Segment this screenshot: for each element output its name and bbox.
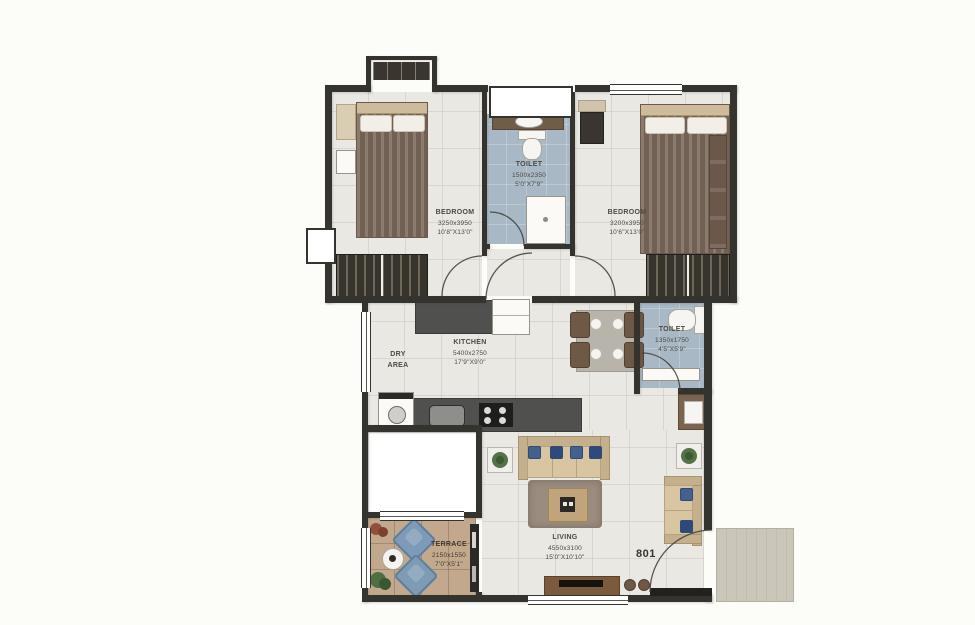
room-dims-mm: 3200x3950 xyxy=(580,219,674,229)
dining-chair xyxy=(570,342,590,368)
wall xyxy=(432,56,437,92)
burner xyxy=(484,417,491,424)
terrace-plant-green xyxy=(370,568,394,594)
bed-right-headboard xyxy=(641,105,729,116)
room-label-kitchen: KITCHEN 5400x2750 17'9"X9'0" xyxy=(425,338,515,368)
plant-icon xyxy=(685,452,693,460)
terrace-side-window xyxy=(361,528,371,588)
room-name: BEDROOM xyxy=(580,208,674,219)
table-top-item xyxy=(389,555,396,562)
room-name: BEDROOM xyxy=(408,208,502,219)
wall-niche xyxy=(306,228,336,264)
room-dims-ft: 10'8"X13'0" xyxy=(408,228,502,238)
washing-machine-panel xyxy=(379,393,413,399)
bed-left-pillow xyxy=(360,115,392,132)
planter xyxy=(487,447,513,473)
room-label-bedroom-left: BEDROOM 3250x3950 10'8"X13'0" xyxy=(408,208,502,238)
wall xyxy=(366,56,371,92)
bed-runner xyxy=(709,135,727,249)
room-label-toilet-right: TOILET 1350x1750 4'5"X5'9" xyxy=(634,325,710,355)
room-label-living: LIVING 4550x3100 15'0"X10'10" xyxy=(518,533,612,563)
sofa-arm xyxy=(664,534,702,544)
wardrobe-divider xyxy=(381,255,383,297)
wall xyxy=(362,425,482,432)
dry-area-window xyxy=(361,312,371,392)
bed-right-pillow xyxy=(687,117,727,134)
terrace-table xyxy=(382,548,404,570)
terrace-plant-red xyxy=(370,521,390,541)
plate xyxy=(590,348,602,360)
tv-console xyxy=(544,576,620,597)
floor-plan-canvas: BEDROOM 3250x3950 10'8"X13'0" TOILET 150… xyxy=(0,0,975,625)
kitchen-counter-top xyxy=(415,300,493,334)
kitchen-sink xyxy=(429,405,465,427)
plate xyxy=(590,318,602,330)
room-dims-ft: 10'6"X13'0" xyxy=(580,228,674,238)
room-dims-ft: 17'9"X9'0" xyxy=(425,358,515,368)
shower-tray xyxy=(526,196,566,244)
sofa-pillow xyxy=(589,446,602,459)
tray-item xyxy=(569,502,573,506)
unit-number: 801 xyxy=(636,548,656,560)
toilet-right-ledge xyxy=(642,368,700,381)
bedside-table xyxy=(336,150,356,174)
burner xyxy=(484,407,491,414)
passage-basin xyxy=(684,401,703,424)
bedroom-right-window xyxy=(610,84,682,95)
sofa-pillow xyxy=(680,488,693,501)
dining-chair xyxy=(570,312,590,338)
room-name: KITCHEN xyxy=(425,338,515,349)
wall xyxy=(325,296,486,303)
wardrobe-divider xyxy=(687,255,689,297)
tv-unit-bedroom xyxy=(580,112,604,144)
burner xyxy=(499,417,506,424)
sofa-3seat xyxy=(518,436,610,478)
wall xyxy=(532,296,737,303)
bed-right-pillow xyxy=(645,117,685,134)
bedside-cabinet xyxy=(336,104,356,140)
room-name: LIVING xyxy=(518,533,612,544)
entrance-door-leaf xyxy=(650,588,712,596)
plant-icon xyxy=(378,527,388,537)
entrance-landing xyxy=(716,528,794,602)
side-stool xyxy=(638,579,650,591)
wall xyxy=(482,244,490,249)
living-window xyxy=(528,595,628,605)
plant-icon xyxy=(496,456,504,464)
plate xyxy=(612,318,624,330)
room-name: TOILET xyxy=(634,325,710,336)
tv-icon xyxy=(559,580,603,587)
sofa-pillow xyxy=(528,446,541,459)
coffee-table xyxy=(548,488,588,522)
wall xyxy=(476,592,482,597)
room-name: DRY AREA xyxy=(382,350,414,371)
fridge xyxy=(492,299,530,335)
room-label-dry-area: DRY AREA xyxy=(382,350,414,371)
plate xyxy=(612,348,624,360)
shelf-right-bedroom xyxy=(578,100,606,112)
room-name: TERRACE xyxy=(420,540,478,551)
planter xyxy=(676,443,702,469)
room-dims-ft: 15'0"X10'10" xyxy=(518,553,612,563)
burner xyxy=(499,407,506,414)
wc-bowl xyxy=(522,138,542,160)
tray-item xyxy=(563,502,567,506)
washing-machine-drum xyxy=(388,406,406,424)
bed-left-headboard xyxy=(357,103,427,114)
bed-left-pillow xyxy=(393,115,425,132)
sofa-2seat xyxy=(664,476,702,544)
utility-void-room xyxy=(368,432,478,514)
terrace-top-window xyxy=(380,511,464,521)
coffee-table-tray xyxy=(560,497,575,512)
wardrobe-left xyxy=(336,254,428,298)
seat-divider xyxy=(665,510,692,511)
wall xyxy=(366,56,437,60)
wall xyxy=(730,85,737,303)
wall xyxy=(432,85,488,92)
room-dims-ft: 4'5"X5'9" xyxy=(634,345,710,355)
room-dims-mm: 5400x2750 xyxy=(425,349,515,359)
wall xyxy=(678,388,712,394)
room-label-bedroom-right: BEDROOM 3200x3950 10'6"X13'0" xyxy=(580,208,674,238)
fridge-door-line xyxy=(493,315,529,316)
wardrobe-right xyxy=(646,254,730,298)
room-dims-mm: 4550x3100 xyxy=(518,544,612,554)
sofa-pillow xyxy=(550,446,563,459)
room-label-terrace: TERRACE 2150x1550 7'0"X5'1" xyxy=(420,540,478,570)
sofa-pillow xyxy=(570,446,583,459)
plant-icon xyxy=(379,578,391,590)
room-dims-mm: 1350x1750 xyxy=(634,336,710,346)
room-dims-mm: 2150x1550 xyxy=(420,551,478,561)
duct-shaft xyxy=(489,86,573,118)
bay-window-glass xyxy=(373,62,430,80)
wall xyxy=(634,388,640,394)
wall xyxy=(476,430,482,518)
room-dims-ft: 5'0"X7'9" xyxy=(489,180,569,190)
wall xyxy=(325,85,332,303)
lobby-floor xyxy=(487,249,570,296)
hob xyxy=(479,403,513,427)
room-dims-ft: 7'0"X5'1" xyxy=(420,560,478,570)
room-label-toilet-top: TOILET 1500x2350 5'0"X7'9" xyxy=(489,160,569,190)
side-stool xyxy=(624,579,636,591)
sofa-pillow xyxy=(680,520,693,533)
room-dims-mm: 1500x2350 xyxy=(489,171,569,181)
room-dims-mm: 3250x3950 xyxy=(408,219,502,229)
wall xyxy=(524,244,575,249)
room-name: TOILET xyxy=(489,160,569,171)
shower-drain xyxy=(543,217,548,222)
